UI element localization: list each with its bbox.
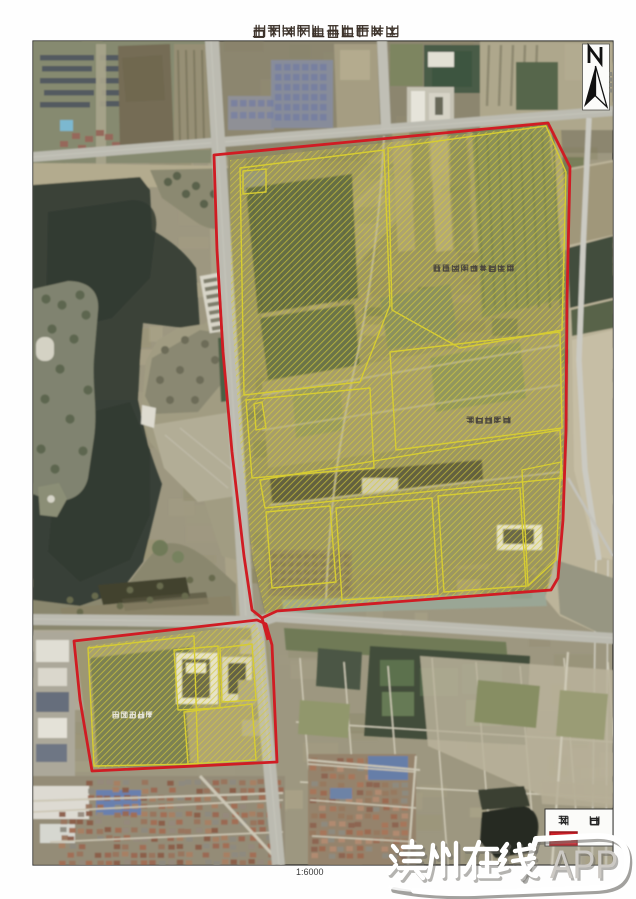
svg-text:APP: APP bbox=[550, 843, 618, 887]
svg-text:1:6000: 1:6000 bbox=[296, 867, 324, 877]
